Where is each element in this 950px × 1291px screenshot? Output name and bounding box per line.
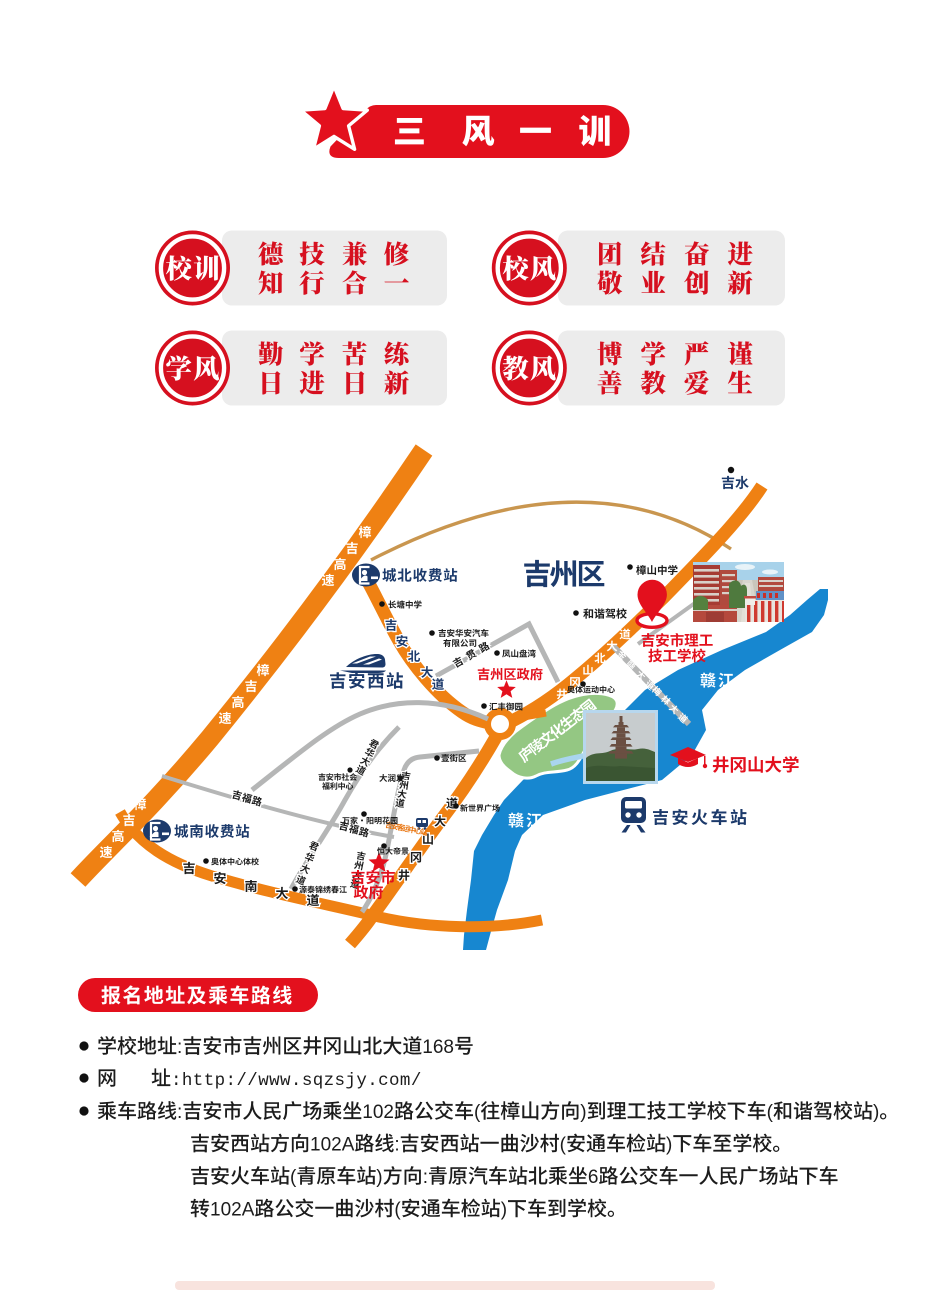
svg-text:): ) xyxy=(873,1102,879,1123)
svg-text:(: ( xyxy=(474,1102,481,1123)
svg-text:(: ( xyxy=(560,1135,567,1156)
svg-text::: : xyxy=(394,1135,399,1156)
svg-text:(: ( xyxy=(767,1102,774,1123)
svg-text:(: ( xyxy=(394,1200,401,1221)
svg-text:102A: 102A xyxy=(210,1200,255,1221)
svg-text::: : xyxy=(177,1102,182,1123)
svg-text:(: ( xyxy=(290,1167,297,1188)
svg-text:102: 102 xyxy=(362,1102,394,1123)
svg-text:102A: 102A xyxy=(310,1135,355,1156)
svg-text:6: 6 xyxy=(588,1167,599,1188)
svg-text:): ) xyxy=(580,1102,586,1123)
svg-text:): ) xyxy=(666,1135,672,1156)
svg-text::http://www.sqzsjy.com/: :http://www.sqzsjy.com/ xyxy=(171,1071,422,1091)
svg-text::: : xyxy=(177,1037,182,1058)
svg-text:): ) xyxy=(501,1200,507,1221)
svg-text::: : xyxy=(423,1167,428,1188)
svg-text:): ) xyxy=(376,1167,382,1188)
svg-text:168: 168 xyxy=(422,1037,454,1058)
